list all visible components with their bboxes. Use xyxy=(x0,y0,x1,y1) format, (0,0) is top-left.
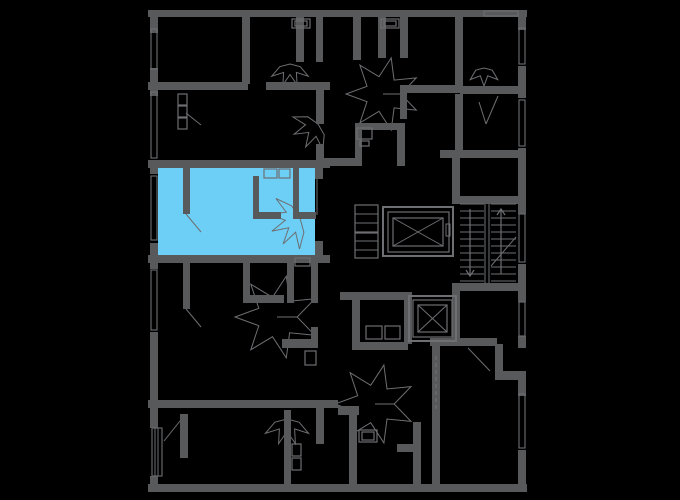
wall-segment xyxy=(452,196,526,204)
wall-segment xyxy=(253,212,281,219)
wall-segment xyxy=(455,10,463,90)
wall-segment xyxy=(183,261,190,309)
wall-segment xyxy=(452,158,460,200)
wall-segment xyxy=(349,413,357,484)
wall-segment xyxy=(400,10,408,58)
wall-segment xyxy=(352,300,360,344)
wall-segment xyxy=(148,82,248,90)
wall-segment xyxy=(413,422,421,484)
wall-segment xyxy=(397,444,417,452)
wall-segment xyxy=(518,450,526,486)
wall-segment xyxy=(183,166,190,214)
floor-plan-stage xyxy=(0,0,680,500)
wall-segment xyxy=(148,484,527,492)
wall-segment xyxy=(311,255,318,303)
selected-apartment-layer xyxy=(158,167,315,256)
wall-segment xyxy=(340,292,408,300)
wall-segment xyxy=(282,339,318,348)
wall-segment xyxy=(353,10,361,60)
wall-segment xyxy=(495,344,503,375)
wall-segment xyxy=(298,212,316,219)
wall-segment xyxy=(242,10,250,84)
wall-segment xyxy=(180,414,188,458)
wall-segment xyxy=(455,94,463,156)
wall-segment xyxy=(316,10,323,62)
wall-segment xyxy=(316,158,358,166)
wall-segment xyxy=(284,410,291,484)
wall-segment xyxy=(150,476,158,488)
wall-segment xyxy=(150,332,158,428)
wall-segment xyxy=(518,377,526,396)
wall-segment xyxy=(518,10,526,30)
wall-segment xyxy=(352,342,408,350)
wall-segment xyxy=(316,406,324,444)
wall-segment xyxy=(148,400,338,408)
wall-segment xyxy=(378,10,386,58)
floor-plan xyxy=(0,0,680,500)
wall-segment xyxy=(400,85,460,93)
wall-segment xyxy=(148,10,527,17)
wall-segment xyxy=(397,123,405,166)
wall-segment xyxy=(400,93,407,119)
wall-segment xyxy=(148,255,330,263)
wall-segment xyxy=(518,336,526,348)
wall-segment xyxy=(440,150,526,158)
background xyxy=(0,0,680,500)
wall-segment xyxy=(148,160,330,168)
wall-segment xyxy=(355,123,400,130)
selected-apartment[interactable] xyxy=(158,167,315,256)
wall-segment xyxy=(316,86,324,124)
wall-segment xyxy=(287,255,294,303)
wall-segment xyxy=(460,86,526,94)
wall-segment xyxy=(452,283,526,291)
wall-segment xyxy=(293,168,299,219)
wall-segment xyxy=(243,295,284,303)
wall-segment xyxy=(296,10,304,62)
